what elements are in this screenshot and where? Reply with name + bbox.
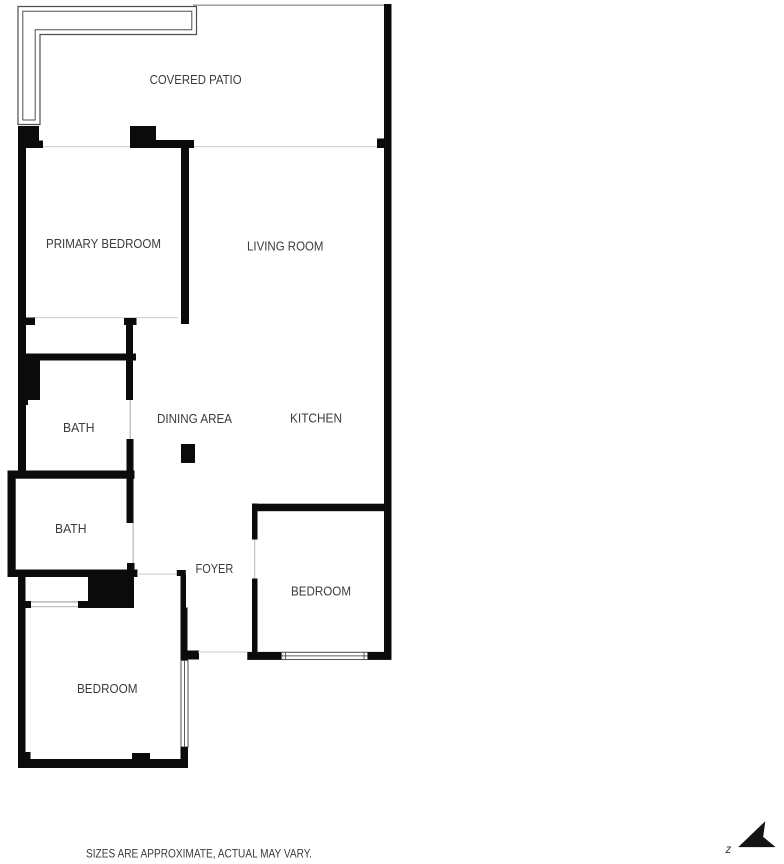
svg-text:LIVING ROOM: LIVING ROOM	[247, 238, 324, 253]
svg-text:BATH: BATH	[55, 521, 87, 536]
svg-text:SIZES ARE APPROXIMATE, ACTUAL: SIZES ARE APPROXIMATE, ACTUAL MAY VARY.	[86, 849, 312, 861]
svg-text:z: z	[725, 844, 732, 856]
svg-text:FOYER: FOYER	[196, 561, 234, 576]
svg-text:COVERED PATIO: COVERED PATIO	[150, 72, 242, 87]
svg-text:BEDROOM: BEDROOM	[77, 681, 138, 696]
svg-text:BEDROOM: BEDROOM	[291, 584, 351, 599]
svg-text:DINING AREA: DINING AREA	[157, 411, 232, 426]
svg-text:PRIMARY BEDROOM: PRIMARY BEDROOM	[46, 236, 161, 251]
svg-text:KITCHEN: KITCHEN	[290, 411, 342, 426]
svg-text:BATH: BATH	[63, 420, 95, 435]
